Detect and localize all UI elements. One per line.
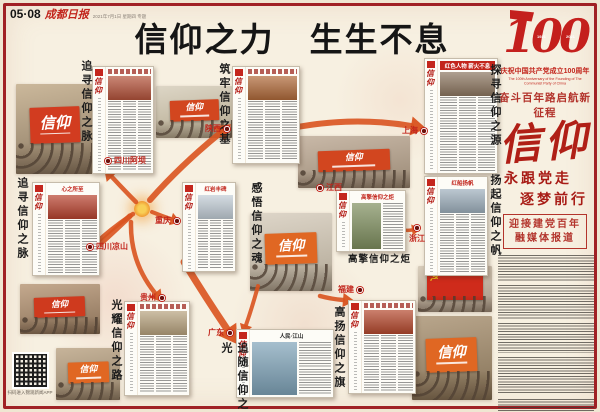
paper-text-columns <box>383 203 403 250</box>
paper-masthead-title: 信仰 <box>350 311 361 329</box>
paper-body <box>362 301 415 393</box>
paper-masthead: 信仰 <box>33 183 46 275</box>
paper-photo <box>248 76 297 100</box>
faith-calligraphy: 信仰 <box>493 116 598 169</box>
photo-southwest-banner: 信仰 <box>20 284 100 334</box>
paper-masthead: 信仰 <box>349 301 362 393</box>
paper-logo-mark <box>351 303 359 310</box>
banner-text: 信仰 <box>437 345 466 360</box>
paper-text-column <box>456 214 470 273</box>
region-name: 广东 <box>208 327 224 338</box>
section-label: 高擎信仰之炬 <box>348 251 411 265</box>
paper-photo <box>198 195 233 219</box>
section-label: 光耀信仰之路 <box>108 299 124 383</box>
paper-text-column <box>198 220 208 269</box>
paper-masthead-lines <box>130 333 133 393</box>
paragraph <box>498 399 594 412</box>
newspaper-thumbnail-guizhou: 信仰 <box>124 301 190 396</box>
logo-year-start: 1921 <box>537 34 546 39</box>
paper-photo <box>108 76 151 100</box>
paper-headline: 人民·江山 <box>252 332 331 340</box>
section-label: 探寻信仰之源 <box>487 64 503 148</box>
banner-subtext <box>45 311 76 314</box>
section-label: 感悟信仰之魂 <box>248 182 264 266</box>
qr-caption: 扫码进入锦观新闻APP <box>4 390 56 396</box>
party-100-logo: 100 1921 2021 <box>494 8 596 64</box>
paper-text-column <box>383 203 403 225</box>
newspaper-thumbnail-jiangxi: 信仰高擎信仰之炬 <box>336 190 406 252</box>
paper-text-column <box>440 214 454 273</box>
paper-photo <box>364 310 413 334</box>
region-dot <box>420 127 428 135</box>
paper-masthead-title: 信仰 <box>426 187 437 205</box>
paragraph <box>498 323 594 353</box>
banner-text: 信仰 <box>39 115 70 131</box>
banner-subtext <box>275 255 307 258</box>
paper-masthead-title: 信仰 <box>234 77 245 95</box>
faith-banner: 信仰 <box>264 232 318 265</box>
newspaper-thumbnail-fujian: 信仰 <box>348 300 416 394</box>
paragraph <box>498 285 594 319</box>
logo-subtitle-cn: 庆祝中国共产党成立100周年 <box>494 66 596 76</box>
crowd-silhouette <box>418 296 492 312</box>
section-label: 追随信仰之光 <box>218 342 250 412</box>
paper-masthead-lines <box>430 90 433 171</box>
paper-text-columns <box>364 335 413 391</box>
region-dot <box>223 125 231 133</box>
paper-text-columns <box>140 336 187 393</box>
box-line1: 迎接建党百年 <box>506 218 584 232</box>
section-label: 扬起信仰之帆 <box>487 174 503 258</box>
crowd-silhouette <box>412 371 492 400</box>
paper-text-column <box>299 369 331 395</box>
paper-logo-mark <box>127 304 135 311</box>
region-name: 贵州 <box>140 292 156 303</box>
banner-subtext <box>76 376 101 378</box>
banner-text: 信仰 <box>51 301 68 310</box>
paper-text-column <box>299 342 331 368</box>
paper-masthead-title: 信仰 <box>94 77 105 95</box>
region-dot <box>86 243 94 251</box>
paper-text-columns <box>440 214 485 273</box>
paper-masthead-title: 信仰 <box>184 193 195 211</box>
region-name: 重庆 <box>155 215 171 226</box>
region-label-贵州: 贵州 <box>140 292 166 303</box>
banner-subtext <box>437 361 468 364</box>
region-dot <box>173 217 181 225</box>
newspaper-masthead: 成都日报 <box>45 6 89 22</box>
paper-headline: 红岩丰碑 <box>198 185 233 193</box>
faith-banner: 信仰 <box>67 361 109 383</box>
region-dot <box>356 286 364 294</box>
paper-masthead-lines <box>342 222 345 249</box>
paper-text-column <box>173 336 187 393</box>
paper-masthead-title: 信仰 <box>426 69 437 87</box>
banner-subtext <box>40 133 70 136</box>
paper-text-column <box>210 220 220 269</box>
paper-body: 心之所至 <box>46 183 99 275</box>
paper-logo-mark <box>339 193 347 200</box>
paper-photo <box>440 189 485 213</box>
newspaper-thumbnail-guangdong: 信仰人民·江山 <box>236 329 334 398</box>
paper-text-column <box>65 220 80 273</box>
paper-masthead: 信仰 <box>125 302 138 395</box>
region-dot <box>226 329 234 337</box>
paper-text-column <box>383 227 403 249</box>
paper-body: 红岩丰碑 <box>196 183 235 271</box>
crowd-silhouette <box>16 143 94 174</box>
region-dot <box>316 184 324 192</box>
faith-banner: 信仰 <box>318 148 390 171</box>
paper-headline <box>108 69 151 74</box>
paper-text-column <box>381 335 396 391</box>
region-label-上海: 上海 <box>402 125 428 136</box>
banner-subtext <box>180 114 209 117</box>
region-label-福建: 福建 <box>338 284 364 295</box>
region-name: 浙江 <box>409 233 425 244</box>
paper-masthead-lines <box>188 214 191 269</box>
region-label-四川凉山: 四川凉山 <box>86 241 128 252</box>
qr-code <box>12 352 49 389</box>
region-label-浙江: 浙江 <box>409 224 425 244</box>
paper-text-column <box>471 214 485 273</box>
paper-masthead-lines <box>238 98 241 161</box>
paper-text-columns <box>299 342 331 396</box>
box-line2: 融媒体报道 <box>506 232 584 246</box>
region-name: 江西 <box>326 182 342 193</box>
region-label-陕西: 陕西 <box>205 123 231 134</box>
paper-text-column <box>156 336 170 393</box>
paper-text-column <box>265 101 280 161</box>
region-name: 福建 <box>338 284 354 295</box>
paper-logo-mark <box>427 61 435 68</box>
paper-text-column <box>223 220 233 269</box>
photo-fujian-banner: 信仰 <box>412 316 492 400</box>
paper-text-column <box>440 97 457 171</box>
section-label: 追寻信仰之脉 <box>14 177 30 261</box>
column-body-text <box>498 255 594 412</box>
crowd-silhouette <box>250 264 332 291</box>
paper-masthead: 信仰 <box>425 59 438 173</box>
banner-text: 信仰 <box>79 365 97 374</box>
paper-text-column <box>459 97 476 171</box>
region-dot <box>104 157 112 165</box>
page-title: 信仰之力 生生不息 <box>108 13 476 61</box>
paper-masthead-lines <box>98 98 101 171</box>
column-headline-line1: 永跟党走 <box>504 168 596 188</box>
newspaper-thumbnail-shaanxi: 信仰 <box>232 66 300 164</box>
paper-headline <box>248 69 297 74</box>
paper-masthead-title: 信仰 <box>34 193 45 211</box>
paper-masthead-title: 信仰 <box>338 201 349 219</box>
paper-masthead-title: 信仰 <box>126 312 137 330</box>
paper-text-column <box>48 220 63 273</box>
banner-text: 信仰 <box>345 153 363 162</box>
section-label: 筑牢信仰之基 <box>216 63 232 147</box>
crowd-silhouette <box>20 317 100 334</box>
region-name: 四川阿坝 <box>114 155 146 166</box>
paper-photo <box>252 342 297 396</box>
paper-text-columns <box>198 220 233 269</box>
paragraph <box>498 357 594 395</box>
region-label-重庆: 重庆 <box>155 215 181 226</box>
paper-photo <box>140 311 187 335</box>
edition-number: 05·08 <box>10 7 41 21</box>
paper-masthead-lines <box>430 208 433 273</box>
newspaper-thumbnail-sichuan-liangshan: 信仰心之所至 <box>32 182 100 276</box>
newspaper-thumbnail-chongqing: 信仰红岩丰碑 <box>182 182 236 272</box>
paper-body: 红船扬帆 <box>438 177 487 275</box>
paper-masthead-lines <box>38 214 41 273</box>
paper-headline: 高擎信仰之炬 <box>352 193 403 201</box>
logo-year-end: 2021 <box>566 34 575 39</box>
faith-banner: 信仰 <box>426 337 478 372</box>
logo-subtitle-en: The 100th Anniversary of the Founding of… <box>499 77 591 86</box>
paper-logo-mark <box>427 179 435 186</box>
faith-banner: 信仰 <box>29 107 80 145</box>
report-series-box: 迎接建党百年 融媒体报道 <box>503 214 587 249</box>
paper-text-column <box>364 335 379 391</box>
region-label-广东: 广东 <box>208 327 234 338</box>
paper-logo-mark <box>35 185 43 192</box>
paper-logo-mark <box>95 69 103 76</box>
faith-banner: 信仰 <box>169 99 218 121</box>
region-dot <box>413 224 421 232</box>
banner-text: 信仰 <box>185 103 203 112</box>
banner-subtext <box>333 164 376 167</box>
origin-sun-marker <box>134 201 150 217</box>
region-name: 陕西 <box>205 123 221 134</box>
right-column: 100 1921 2021 庆祝中国共产党成立100周年 The 100th A… <box>494 8 596 404</box>
paper-body <box>246 67 299 163</box>
crowd-silhouette <box>298 170 410 188</box>
paper-logo-mark <box>239 332 247 339</box>
paper-body <box>138 302 189 395</box>
paper-logo-mark <box>185 185 193 192</box>
paper-headline: 心之所至 <box>48 185 97 193</box>
column-headline-line2: 逐梦前行 <box>520 189 596 209</box>
paper-masthead: 信仰 <box>337 191 350 251</box>
paper-headline <box>140 304 187 309</box>
paper-logo-mark <box>235 69 243 76</box>
faith-banner: 信仰 <box>34 296 86 318</box>
paper-body: 人民·江山 <box>250 330 333 397</box>
paper-text-columns <box>248 101 297 161</box>
region-label-四川阿坝: 四川阿坝 <box>104 155 146 166</box>
newspaper-page: 05·08 成都日报 2021年7月1日 星期四 专题 信仰之力 生生不息 信仰… <box>0 0 600 412</box>
paper-masthead: 信仰 <box>183 183 196 271</box>
paper-photo <box>48 195 97 219</box>
paper-body: 高擎信仰之炬 <box>350 191 405 251</box>
section-label: 高扬信仰之旗 <box>331 306 347 390</box>
photo-jiangsu-banner: 信仰 <box>298 136 410 188</box>
paper-photo <box>352 203 381 250</box>
paper-headline: 红船扬帆 <box>440 179 485 187</box>
newspaper-thumbnail-zhejiang: 信仰红船扬帆 <box>424 176 488 276</box>
region-dot <box>158 294 166 302</box>
banner-text: 信仰 <box>277 240 304 254</box>
paper-headline <box>364 303 413 308</box>
paper-text-column <box>248 101 263 161</box>
region-name: 四川凉山 <box>96 241 128 252</box>
paper-masthead-lines <box>354 332 357 391</box>
section-label: 追寻信仰之脉 <box>78 60 94 144</box>
crowd-silhouette <box>56 382 120 400</box>
paper-text-column <box>398 335 413 391</box>
paper-text-column <box>282 101 297 161</box>
region-name: 上海 <box>402 125 418 136</box>
paper-masthead: 信仰 <box>233 67 246 163</box>
paragraph <box>498 255 594 281</box>
region-label-江西: 江西 <box>316 182 342 193</box>
paper-text-column <box>140 336 154 393</box>
paper-masthead: 信仰 <box>425 177 438 275</box>
